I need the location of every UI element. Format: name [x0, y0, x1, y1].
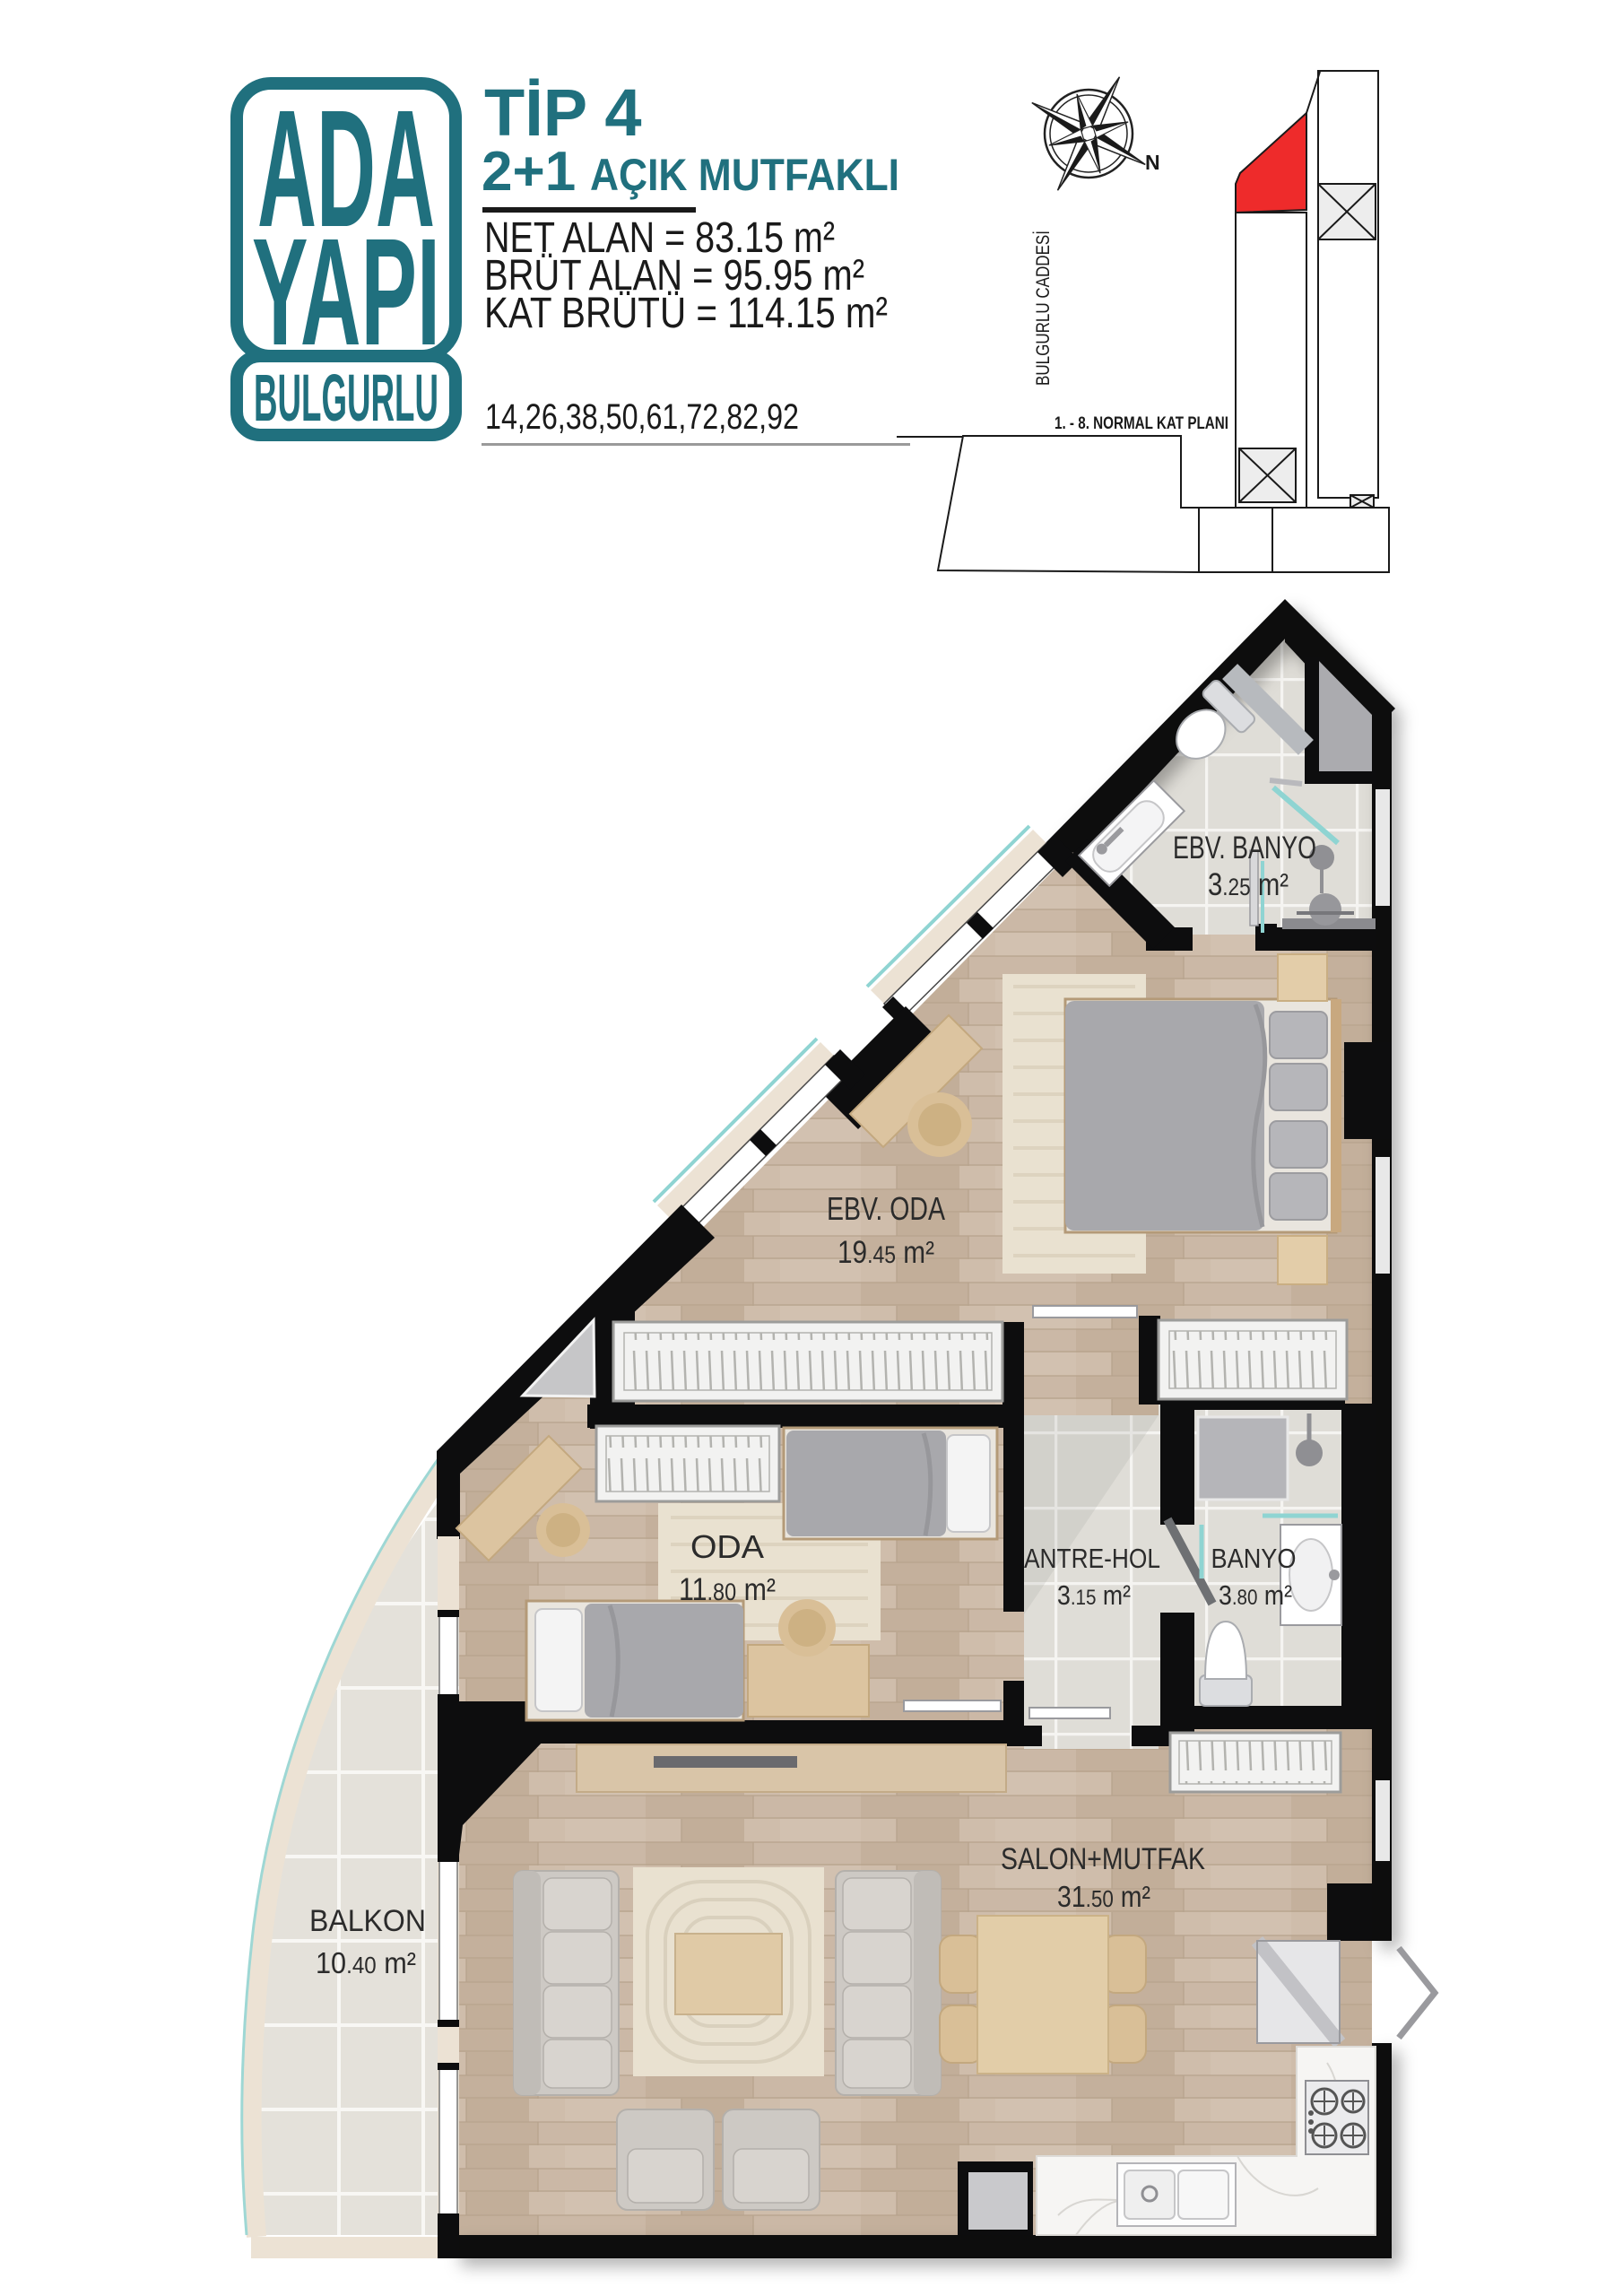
svg-text:ODA: ODA: [690, 1528, 764, 1565]
svg-text:KAT BRÜTÜ = 114.15 m²: KAT BRÜTÜ = 114.15 m²: [484, 290, 888, 337]
svg-text:N: N: [1145, 151, 1160, 174]
svg-text:EBV. ODA: EBV. ODA: [827, 1190, 945, 1227]
svg-text:BALKON: BALKON: [309, 1904, 426, 1938]
svg-text:2+1: 2+1: [482, 141, 576, 203]
svg-text:14,26,38,50,61,72,82,92: 14,26,38,50,61,72,82,92: [485, 397, 799, 437]
svg-text:1. - 8. NORMAL KAT PLANI: 1. - 8. NORMAL KAT PLANI: [1055, 414, 1228, 433]
svg-text:BANYO: BANYO: [1211, 1543, 1297, 1574]
svg-text:AÇIK MUTFAKLI: AÇIK MUTFAKLI: [590, 150, 899, 200]
svg-text:BULGURLU CADDESİ: BULGURLU CADDESİ: [1033, 230, 1054, 386]
svg-text:10.40 m²: 10.40 m²: [316, 1946, 416, 1979]
svg-text:BULGURLU: BULGURLU: [254, 361, 438, 435]
svg-text:EBV. BANYO: EBV. BANYO: [1173, 831, 1316, 865]
svg-text:SALON+MUTFAK: SALON+MUTFAK: [1001, 1842, 1205, 1876]
svg-text:TİP 4: TİP 4: [484, 75, 642, 150]
svg-text:31.50 m²: 31.50 m²: [1057, 1880, 1150, 1913]
svg-text:ANTRE-HOL: ANTRE-HOL: [1024, 1543, 1160, 1574]
